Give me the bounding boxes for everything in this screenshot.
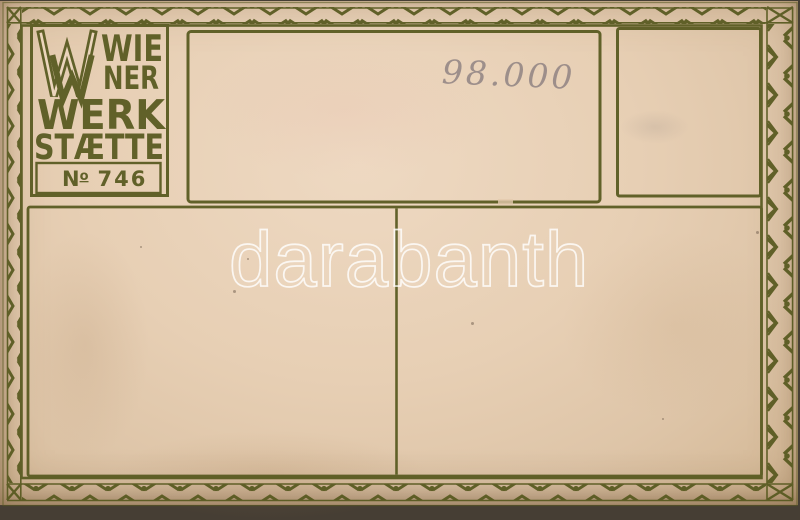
right-border-pattern [767, 8, 793, 500]
stamp-box [618, 29, 761, 197]
card-number: No746 [62, 167, 147, 191]
ww-monogram [41, 34, 93, 99]
publisher-name-line4: STÆTTE [34, 127, 164, 168]
left-border-pattern [7, 8, 21, 500]
top-border-pattern [7, 7, 793, 24]
publisher-logo-box: WIE NER WERK STÆTTE No746 [32, 26, 168, 196]
print-wear-break [498, 199, 513, 205]
bottom-border-pattern [7, 484, 793, 501]
handwritten-price: 98.000 [441, 52, 576, 97]
darabanth-watermark: darabanth [229, 214, 589, 305]
postcard-scan: WIE NER WERK STÆTTE No746 98.000 d [0, 0, 800, 511]
